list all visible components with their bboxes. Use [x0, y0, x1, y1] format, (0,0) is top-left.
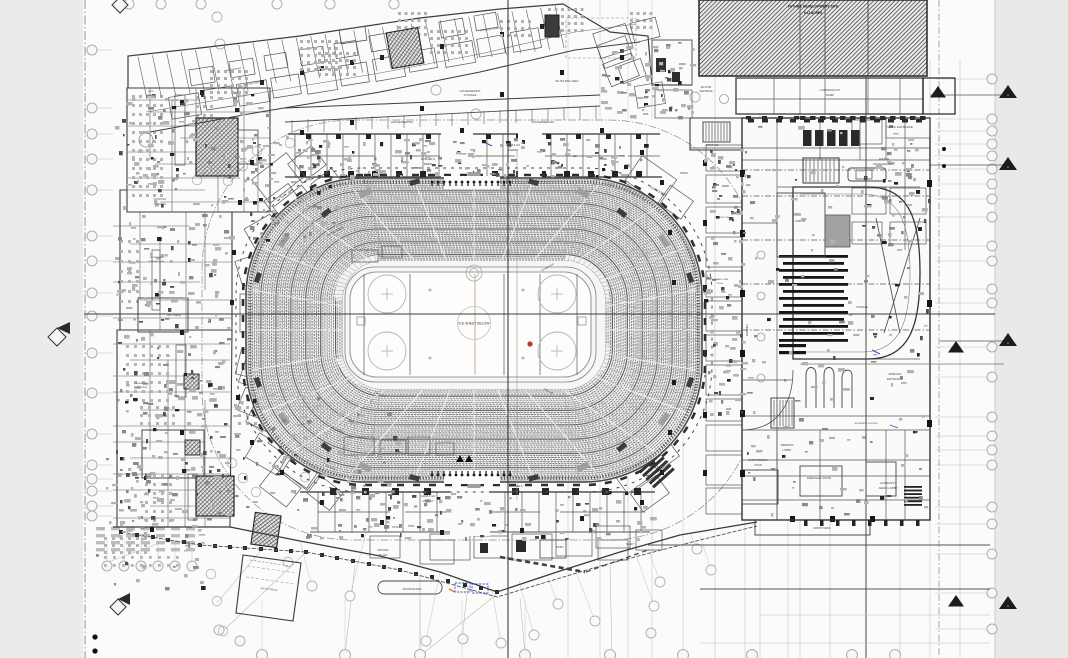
svg-text:MARKET: MARKET — [508, 148, 519, 152]
svg-text:NE HOLDING AREA: NE HOLDING AREA — [556, 80, 579, 83]
svg-text:ICE SHEET BELOW: ICE SHEET BELOW — [458, 322, 490, 326]
svg-text:CATERING: CATERING — [137, 386, 148, 389]
svg-text:STORAGE: STORAGE — [464, 93, 477, 97]
svg-text:FRONT DESK: FRONT DESK — [813, 526, 830, 530]
svg-text:EMER ELEC ROOM: EMER ELEC ROOM — [807, 476, 831, 480]
svg-text:INDOOR: INDOOR — [377, 548, 388, 552]
svg-text:BURGER &: BURGER & — [421, 157, 435, 161]
svg-text:STORAGE: STORAGE — [856, 306, 868, 309]
svg-text:COMMUNITY: COMMUNITY — [880, 481, 897, 485]
svg-text:CROWN FAM: CROWN FAM — [149, 256, 163, 259]
svg-text:KITCHEN: KITCHEN — [154, 202, 166, 206]
svg-text:PLAZA: PLAZA — [379, 553, 388, 557]
svg-text:SHAFT: SHAFT — [626, 542, 635, 546]
svg-text:BURGER &: BURGER & — [509, 484, 523, 488]
svg-text:PREMIUM: PREMIUM — [781, 443, 794, 447]
svg-text:BREW: BREW — [512, 489, 520, 493]
svg-text:STAFF ENTRANCE: STAFF ENTRANCE — [887, 125, 913, 129]
svg-text:PARKING: PARKING — [889, 372, 903, 376]
svg-text:HOUSEKEEPING: HOUSEKEEPING — [460, 89, 481, 93]
svg-text:SOUL: SOUL — [148, 91, 155, 93]
svg-text:SPONSOR BAR: SPONSOR BAR — [402, 587, 421, 591]
svg-text:PIZZA: PIZZA — [680, 171, 688, 175]
svg-text:LOADINGDOCK: LOADINGDOCK — [820, 88, 841, 92]
svg-text:GRAB & GO: GRAB & GO — [506, 143, 521, 147]
svg-text:VESTIBULE: VESTIBULE — [699, 90, 713, 93]
svg-text:EAST PREMIUM: EAST PREMIUM — [749, 459, 768, 462]
svg-text:RESTAURANT: RESTAURANT — [135, 382, 150, 385]
svg-text:ARENA LOBBY: ARENA LOBBY — [879, 486, 898, 490]
svg-text:PRINT: PRINT — [556, 546, 564, 549]
svg-text:FUTURE DEVELOPMENT SITE: FUTURE DEVELOPMENT SITE — [788, 5, 839, 9]
svg-text:VENDOR COM: VENDOR COM — [715, 217, 730, 219]
svg-text:PATIO: PATIO — [392, 525, 399, 529]
svg-text:LOBBY: LOBBY — [783, 448, 792, 452]
svg-text:MARKET: MARKET — [146, 94, 156, 97]
svg-text:STAIR: STAIR — [754, 464, 761, 467]
svg-text:WASTE: WASTE — [879, 157, 890, 161]
svg-text:COCKTAIL: COCKTAIL — [154, 197, 167, 201]
svg-text:HOUSEKEEPING: HOUSEKEEPING — [391, 120, 413, 124]
svg-text:LOUNGE CLUB: LOUNGE CLUB — [148, 261, 164, 263]
svg-text:ENTER/EXIT ROSTER: ENTER/EXIT ROSTER — [855, 423, 878, 425]
svg-text:BREW: BREW — [424, 162, 433, 166]
svg-text:5-12 ACRES: 5-12 ACRES — [804, 11, 822, 15]
svg-text:HOUSEKEEPING: HOUSEKEEPING — [532, 120, 554, 124]
svg-text:MARKET: MARKET — [423, 499, 434, 503]
svg-text:MANAGEMENT: MANAGEMENT — [873, 162, 895, 166]
svg-text:GRAB & GO: GRAB & GO — [421, 494, 436, 498]
svg-text:JANITOR: JANITOR — [795, 220, 805, 223]
svg-text:RAMP: RAMP — [826, 93, 834, 97]
svg-text:ENTRANCE: ENTRANCE — [887, 377, 903, 381]
svg-text:APOTHEKE: APOTHEKE — [167, 313, 181, 317]
svg-text:FIRST AID: FIRST AID — [706, 143, 719, 147]
svg-text:KOREAN CORN: KOREAN CORN — [712, 278, 729, 281]
svg-text:PERSHING: PERSHING — [747, 324, 749, 336]
svg-text:NE STAIR: NE STAIR — [701, 86, 712, 89]
svg-text:DOGS: DOGS — [717, 283, 724, 285]
